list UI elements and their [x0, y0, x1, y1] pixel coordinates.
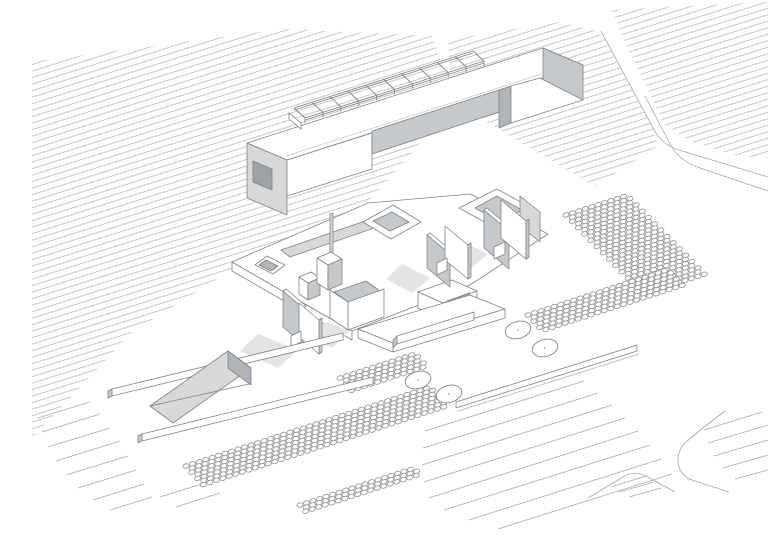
- site-model-drawing: [0, 0, 768, 543]
- wall-b-side: [468, 243, 471, 279]
- architectural-axonometric-drawing: [0, 0, 768, 543]
- bar-notch-jamb: [499, 86, 511, 128]
- panel-b-side: [319, 318, 322, 354]
- tower-mast: [330, 213, 333, 258]
- long-wall-1-end: [108, 389, 112, 398]
- long-wall-2-end: [138, 434, 142, 443]
- wall-d-side: [526, 219, 529, 259]
